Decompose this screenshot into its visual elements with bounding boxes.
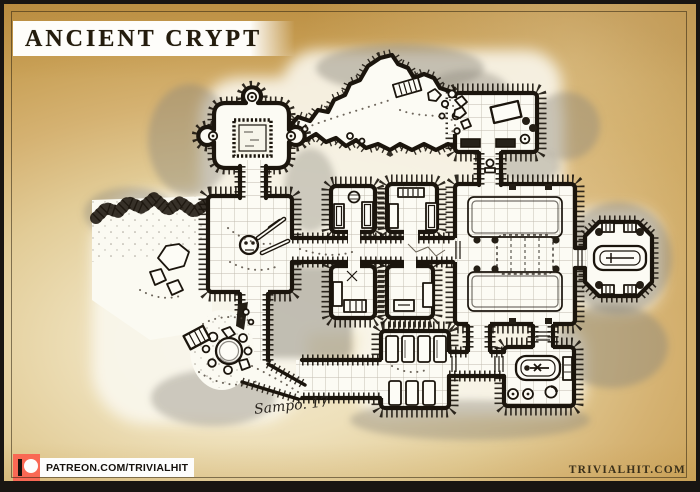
sconce-icon	[545, 318, 552, 324]
pillar-icon	[552, 265, 559, 272]
rubble-rock	[454, 128, 460, 134]
chest-icon	[344, 300, 366, 312]
statue-icon	[486, 159, 493, 166]
chest-icon	[602, 285, 614, 294]
patreon-link[interactable]: PATREON.COM/TRIVIALHIT	[40, 458, 194, 477]
rubble-rock	[360, 139, 365, 144]
corridor-hall-south-east	[533, 320, 553, 351]
shelf-icon	[563, 357, 572, 380]
coffin-niche	[389, 204, 398, 228]
bench-icon	[496, 139, 515, 147]
coffin-icon	[418, 336, 430, 362]
bench-icon	[461, 139, 480, 147]
pillar-icon	[636, 228, 644, 236]
sconce-icon	[509, 184, 516, 190]
website-link[interactable]: TRIVIALHIT.COM	[569, 464, 686, 476]
corridor-shrine-to-bone-room	[240, 160, 266, 204]
patreon-logo-bar	[18, 459, 22, 476]
rubble-rock	[249, 320, 254, 325]
rubble-rock	[224, 366, 232, 374]
pillar-icon	[491, 236, 498, 243]
rubble-rock	[347, 133, 353, 139]
corridor-hall-to-tomb	[573, 248, 587, 268]
corridor-hall-south-west	[468, 320, 490, 356]
coffin-niche	[426, 203, 437, 230]
coffin-icon	[402, 336, 414, 362]
main-east-west-corridor	[284, 238, 457, 262]
pot-icon	[529, 124, 537, 132]
grate-icon	[398, 188, 424, 197]
coffin-icon	[389, 381, 401, 405]
coffin-icon	[406, 381, 418, 405]
rubble-rock	[439, 113, 444, 118]
rubble-rock	[239, 359, 250, 370]
chest-icon	[624, 223, 636, 232]
pillar-icon	[473, 236, 480, 243]
coffin-niche	[362, 202, 373, 228]
rubble-rock	[239, 334, 247, 342]
well-icon	[349, 192, 360, 203]
pillar-icon	[491, 265, 498, 272]
sconce-icon	[509, 318, 516, 324]
screenshot-root: ANCIENT CRYPT Sampo. 17 PATREON.COM/TRIV…	[0, 0, 700, 492]
body-icon	[524, 365, 530, 371]
rubble-rock	[208, 359, 216, 367]
statue-base	[485, 168, 495, 173]
rubble-rock	[243, 309, 249, 315]
rubble-rock	[448, 90, 455, 97]
pillar-icon	[473, 265, 480, 272]
crypt-map	[0, 0, 700, 492]
pillar-icon	[636, 281, 644, 289]
coffin-niche	[334, 204, 344, 228]
page-title: ANCIENT CRYPT	[13, 21, 295, 54]
coffin-icon	[386, 336, 398, 362]
corridor-southwest	[296, 360, 385, 398]
title-banner: ANCIENT CRYPT	[13, 21, 295, 56]
chest-icon	[624, 285, 636, 294]
coffin-icon	[423, 381, 435, 405]
pot-icon	[522, 117, 530, 125]
skull-icon	[240, 236, 258, 254]
sconce-icon	[545, 184, 552, 190]
pillar-icon	[552, 236, 559, 243]
patreon-logo-circle	[24, 459, 38, 473]
chest-icon	[602, 223, 614, 232]
great-hall	[451, 180, 579, 328]
patreon-logo[interactable]	[13, 454, 40, 481]
coffin-niche	[423, 283, 433, 307]
coffin-niche	[333, 282, 342, 306]
rubble-rock	[244, 347, 251, 354]
rubble-rock	[442, 101, 448, 107]
rubble-rock	[203, 346, 210, 353]
patreon-link-label: PATREON.COM/TRIVIALHIT	[46, 462, 188, 474]
rubble-rock	[461, 119, 471, 129]
corridor-south-link	[446, 352, 508, 376]
coffin-icon	[434, 336, 446, 362]
